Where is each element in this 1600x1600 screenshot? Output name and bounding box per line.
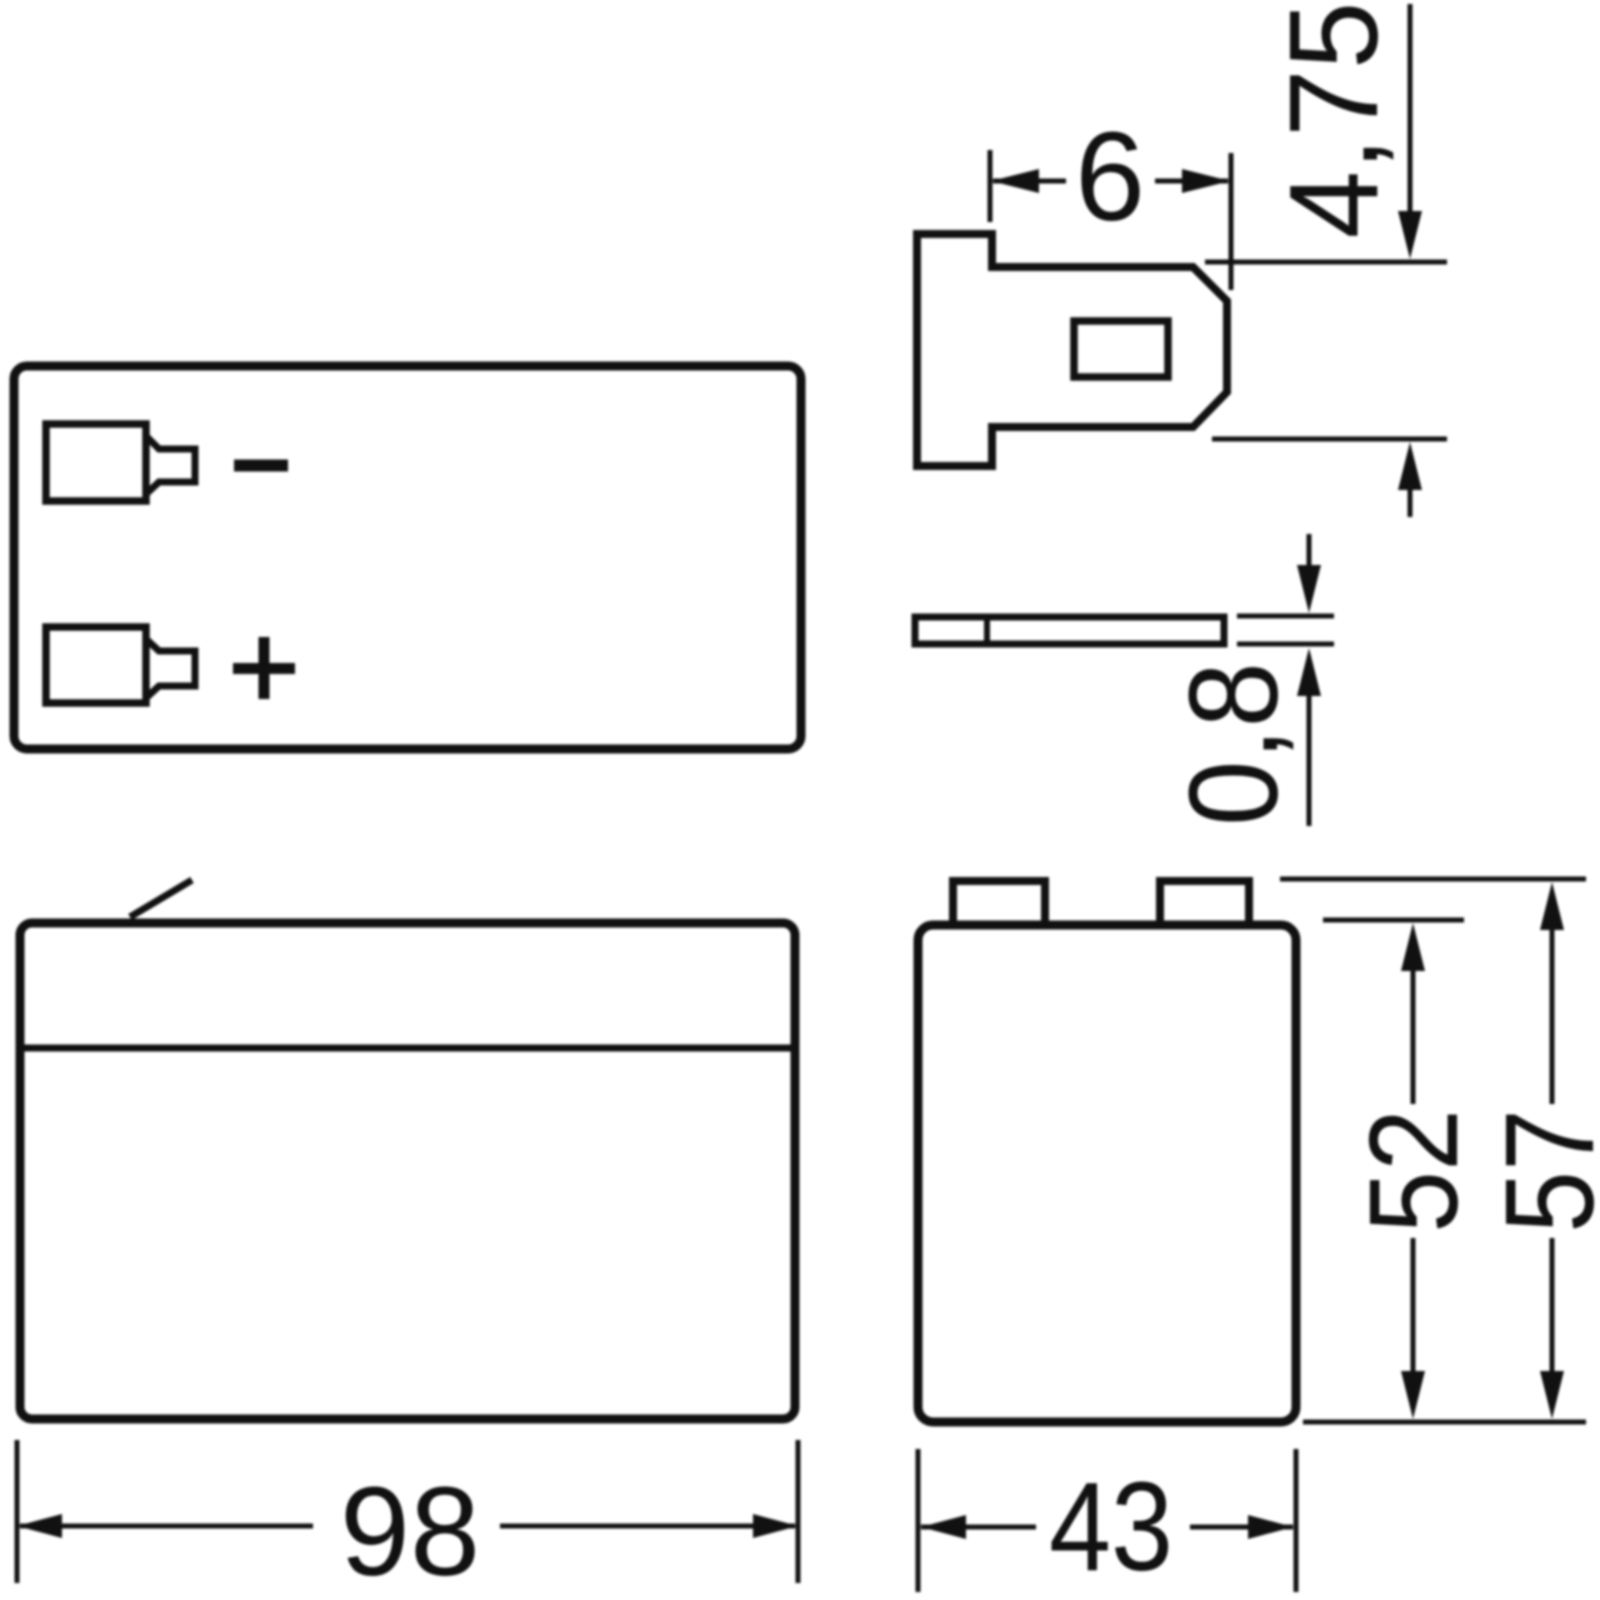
svg-text:4,75: 4,75 — [1263, 2, 1404, 239]
svg-text:98: 98 — [340, 1461, 480, 1600]
svg-text:57: 57 — [1479, 1109, 1600, 1233]
svg-text:52: 52 — [1343, 1109, 1484, 1233]
svg-text:43: 43 — [1049, 1456, 1173, 1597]
svg-text:0,8: 0,8 — [1163, 662, 1304, 826]
svg-text:6: 6 — [1075, 106, 1145, 247]
